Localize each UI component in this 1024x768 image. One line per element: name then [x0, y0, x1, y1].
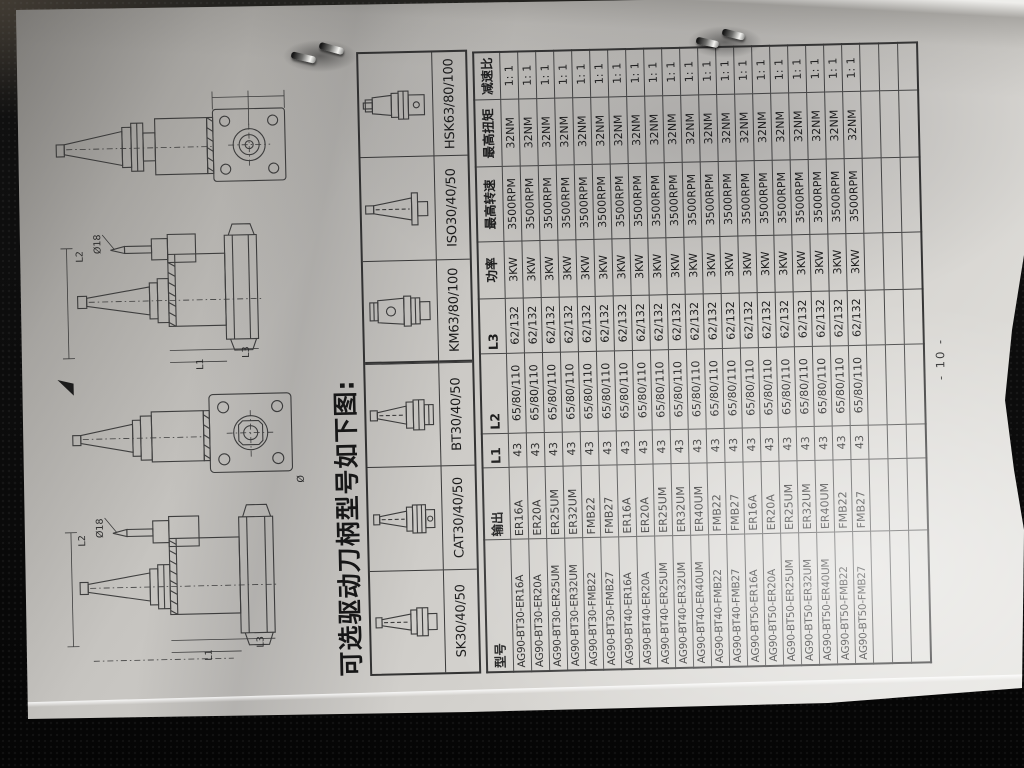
dim-label: Ø — [296, 475, 307, 483]
spec-cell: 32NM — [501, 99, 521, 167]
spec-cell: 32NM — [699, 94, 719, 162]
dim-label: L3 — [241, 346, 252, 358]
spec-cell: 43 — [508, 433, 527, 468]
spec-cell: 65/80/110 — [812, 346, 832, 426]
spec-cell: 62/132 — [649, 294, 668, 350]
spec-cell: 43 — [616, 430, 635, 465]
spec-empty-cell — [899, 90, 920, 158]
spec-cell: FMB22 — [833, 459, 853, 532]
holder-type-label: BT30/40/50 — [439, 362, 474, 466]
spec-cell: 3500RPM — [592, 164, 612, 239]
spec-cell: 3KW — [828, 234, 847, 291]
spec-cell: 65/80/110 — [776, 347, 796, 427]
spec-cell: 3KW — [702, 237, 721, 294]
spec-cell: 1: 1 — [626, 49, 645, 97]
spec-cell: ER16A — [743, 461, 763, 534]
spec-cell: ER20A — [527, 466, 547, 539]
spec-column-header: L1 — [482, 433, 509, 468]
dim-label: L2 — [77, 535, 88, 547]
spec-empty-cell — [861, 91, 882, 159]
spec-cell: 62/132 — [577, 296, 596, 352]
spec-cell: 3KW — [738, 236, 757, 293]
spec-cell: 62/132 — [829, 290, 848, 346]
sk-taper-shank-icon — [372, 599, 443, 645]
technical-drawings-row: L2 Ø18 L1 L3 — [46, 43, 322, 681]
km-shank-icon — [365, 288, 436, 334]
spec-cell: ER25UM — [653, 464, 673, 537]
spec-cell: 1: 1 — [788, 45, 807, 93]
spec-empty-cell — [866, 345, 887, 425]
angle-head-drawing-twin-er: L2 Ø18 L1 L3 — [54, 209, 306, 373]
spec-cell: 3500RPM — [808, 160, 828, 235]
spec-cell: 32NM — [519, 99, 539, 167]
spec-cell: 43 — [706, 428, 725, 463]
spec-empty-cell — [909, 530, 931, 662]
spec-cell: 3KW — [558, 240, 577, 297]
spec-cell: 3500RPM — [772, 160, 792, 235]
spec-cell: 32NM — [717, 94, 737, 162]
paper-sheet: L2 Ø18 L1 L3 — [0, 0, 1024, 768]
spec-cell: 65/80/110 — [848, 345, 868, 425]
spec-table: 型号输出L1L2L3功率最高转速最高扭矩减速比AG90-BT30-ER16AER… — [472, 41, 932, 673]
spec-cell: 43 — [580, 431, 599, 466]
spec-cell: 62/132 — [721, 293, 740, 349]
spec-cell: ER25UM — [779, 461, 799, 534]
spec-cell: 32NM — [537, 98, 557, 166]
spec-cell: 62/132 — [703, 293, 722, 349]
spec-empty-cell — [865, 289, 885, 345]
spec-cell: 3500RPM — [628, 164, 648, 239]
spec-cell: 43 — [688, 428, 707, 463]
spec-cell: 3500RPM — [718, 162, 738, 237]
spec-cell: 43 — [652, 429, 671, 464]
spec-cell: 62/132 — [757, 292, 776, 348]
spec-cell: 3500RPM — [664, 163, 684, 238]
page-content: L2 Ø18 L1 L3 — [38, 15, 963, 695]
spec-empty-cell — [868, 424, 888, 459]
spec-cell: 65/80/110 — [668, 349, 688, 429]
spec-cell: ER16A — [617, 464, 637, 537]
spec-cell: 3KW — [846, 233, 865, 290]
spec-cell: 43 — [562, 431, 581, 466]
spec-empty-cell — [880, 90, 901, 158]
holder-icon-cell — [370, 569, 446, 674]
spec-cell: 1: 1 — [518, 51, 537, 99]
angle-head-drawing-flange-face: Ø — [58, 377, 308, 490]
holder-type-label: SK30/40/50 — [444, 568, 479, 672]
spec-cell: 3KW — [648, 238, 667, 295]
spec-cell: 43 — [742, 427, 761, 462]
spec-cell: 43 — [850, 425, 869, 460]
spec-cell: 3500RPM — [610, 164, 630, 239]
spec-empty-cell — [887, 424, 907, 459]
spec-column-header: L3 — [479, 298, 507, 354]
spec-cell: FMB27 — [851, 459, 871, 532]
bt-taper-shank-icon — [367, 393, 438, 439]
spec-cell: ER20A — [761, 461, 781, 534]
spec-cell: 65/80/110 — [704, 348, 724, 428]
spec-cell: 43 — [724, 428, 743, 463]
spec-cell: 1: 1 — [806, 45, 825, 93]
spec-cell: 65/80/110 — [686, 349, 706, 429]
spec-cell: 32NM — [771, 93, 791, 161]
spec-cell: 43 — [544, 432, 563, 467]
holder-icon-cell — [360, 156, 436, 261]
page-number: - 10 - — [932, 311, 948, 407]
spec-cell: 1: 1 — [662, 48, 681, 96]
spec-column-header: 输出 — [483, 467, 511, 540]
holder-icon-cell — [358, 52, 434, 157]
spec-cell: 62/132 — [793, 291, 812, 347]
spec-cell: FMB27 — [599, 465, 619, 538]
spec-cell: 62/132 — [847, 290, 866, 346]
spec-cell: ER32UM — [797, 460, 817, 533]
cat-taper-shank-icon — [370, 496, 441, 542]
spec-cell: 43 — [796, 426, 815, 461]
spec-column-header: 最高扭矩 — [474, 99, 502, 167]
spec-cell: ER20A — [635, 464, 655, 537]
dim-label: L2 — [75, 251, 86, 263]
spec-cell: 1: 1 — [500, 52, 519, 100]
spec-empty-cell — [906, 423, 926, 458]
spec-empty-cell — [879, 43, 899, 91]
photographed-datasheet: L2 Ø18 L1 L3 — [0, 0, 1024, 768]
spec-cell: ER16A — [509, 467, 529, 540]
dim-label: L1 — [204, 649, 215, 661]
spec-cell: 43 — [598, 430, 617, 465]
spec-cell: 3500RPM — [502, 166, 522, 241]
spec-cell: 1: 1 — [608, 49, 627, 97]
spec-cell: 3500RPM — [736, 161, 756, 236]
spec-cell: 62/132 — [775, 291, 794, 347]
spec-empty-cell — [864, 233, 884, 290]
spec-cell: 3500RPM — [700, 162, 720, 237]
spec-cell: 65/80/110 — [632, 350, 652, 430]
spec-cell: 1: 1 — [644, 48, 663, 96]
staple-left — [291, 45, 351, 69]
spec-cell: 43 — [832, 425, 851, 460]
spec-cell: 3KW — [612, 239, 631, 296]
spec-cell: 65/80/110 — [830, 346, 850, 426]
spec-cell: 65/80/110 — [524, 352, 544, 432]
spec-empty-cell — [888, 458, 909, 531]
spec-cell: 1: 1 — [770, 45, 789, 93]
spec-empty-cell — [869, 459, 890, 532]
spec-cell: 32NM — [735, 94, 755, 162]
staple-right — [696, 31, 756, 55]
spec-empty-cell — [903, 288, 924, 344]
section-arrow-mark — [55, 378, 75, 398]
spec-cell: 3KW — [666, 237, 685, 294]
holder-icon-cell — [368, 466, 444, 571]
spec-cell: 3500RPM — [826, 159, 846, 234]
spec-cell: 1: 1 — [536, 51, 555, 99]
spec-cell: 65/80/110 — [794, 346, 814, 426]
spec-cell: ER32UM — [563, 466, 583, 539]
holder-type-label: CAT30/40/50 — [441, 465, 476, 569]
iso-taper-shank-icon — [363, 186, 434, 232]
spec-cell: 62/132 — [523, 297, 542, 353]
spec-cell: 1: 1 — [554, 50, 573, 98]
spec-cell: 32NM — [753, 93, 773, 161]
spec-cell: ER40UM — [689, 463, 709, 536]
spec-cell: 32NM — [825, 92, 845, 160]
spec-cell: 32NM — [645, 96, 665, 164]
spec-cell: 3KW — [504, 241, 523, 298]
dim-label: L3 — [255, 636, 266, 648]
spec-cell: 3KW — [540, 240, 559, 297]
spec-cell: 65/80/110 — [740, 348, 760, 428]
spec-cell: 3500RPM — [538, 166, 558, 241]
spec-cell: 3500RPM — [844, 159, 864, 234]
dim-label: L1 — [195, 358, 206, 370]
spec-column-header: 功率 — [477, 241, 505, 298]
spec-column-header: 减速比 — [473, 52, 501, 100]
spec-column-header: 最高转速 — [476, 167, 504, 242]
holder-icon-cell — [365, 362, 441, 467]
spec-empty-cell — [862, 158, 883, 233]
spec-cell: 65/80/110 — [650, 350, 670, 430]
spec-cell: 65/80/110 — [542, 352, 562, 432]
spec-cell: 65/80/110 — [722, 348, 742, 428]
spec-cell: 62/132 — [505, 297, 524, 353]
spec-cell: ER32UM — [671, 463, 691, 536]
spec-cell: 3500RPM — [556, 165, 576, 240]
spec-cell: 32NM — [591, 97, 611, 165]
holder-type-band: SK30/40/50 CAT30/40/50 BT30/40/50 KM63/8… — [356, 50, 481, 676]
spec-cell: 62/132 — [613, 295, 632, 351]
spec-cell: ER40UM — [815, 460, 835, 533]
spec-cell: 3KW — [720, 236, 739, 293]
spec-empty-cell — [898, 42, 919, 90]
spec-cell: 3KW — [810, 234, 829, 291]
spec-cell: 43 — [670, 429, 689, 464]
spec-cell: 3KW — [630, 238, 649, 295]
spec-cell: 32NM — [843, 91, 863, 159]
section-heading: 可选驱动刀柄型号如下图: — [326, 379, 369, 677]
spec-empty-cell — [883, 232, 903, 289]
spec-cell: 3500RPM — [682, 162, 702, 237]
spec-cell: 43 — [814, 426, 833, 461]
spec-cell: 1: 1 — [842, 44, 861, 92]
spec-column-header: L2 — [480, 353, 508, 433]
spec-cell: 62/132 — [559, 296, 578, 352]
spec-cell: 1: 1 — [572, 50, 591, 98]
spec-cell: 3KW — [774, 235, 793, 292]
spec-cell: 32NM — [789, 92, 809, 160]
holder-type-label: KM63/80/100 — [437, 258, 472, 362]
spec-cell: 3KW — [684, 237, 703, 294]
spec-cell: 43 — [526, 432, 545, 467]
spec-empty-cell — [885, 344, 906, 424]
spec-cell: 3KW — [576, 239, 595, 296]
spec-cell: 3500RPM — [574, 165, 594, 240]
spec-cell: FMB27 — [725, 462, 745, 535]
spec-cell: 62/132 — [811, 291, 830, 347]
spec-cell: 62/132 — [667, 294, 686, 350]
spec-cell: 62/132 — [739, 292, 758, 348]
dim-label: Ø18 — [92, 234, 103, 254]
angle-head-drawing-square-flange — [51, 83, 302, 207]
spec-cell: 62/132 — [685, 293, 704, 349]
spec-empty-cell — [902, 232, 923, 289]
holder-icon-cell — [363, 259, 439, 364]
spec-cell: 32NM — [555, 98, 575, 166]
spec-cell: 32NM — [609, 96, 629, 164]
spec-cell: 1: 1 — [590, 49, 609, 97]
spec-cell: 3KW — [522, 241, 541, 298]
spec-cell: 3500RPM — [520, 166, 540, 241]
spec-cell: FMB22 — [581, 465, 601, 538]
holder-type-label: HSK63/80/100 — [432, 52, 467, 156]
spec-cell: 3500RPM — [754, 161, 774, 236]
spec-cell: 32NM — [573, 97, 593, 165]
spec-cell: 32NM — [681, 95, 701, 163]
spec-cell: 62/132 — [541, 297, 560, 353]
dim-label: Ø18 — [95, 518, 106, 538]
spec-cell: 65/80/110 — [758, 347, 778, 427]
spec-cell: 32NM — [627, 96, 647, 164]
spec-cell: 3500RPM — [646, 163, 666, 238]
angle-head-drawing-twin-er-large: L2 Ø18 L1 L3 — [60, 494, 312, 665]
spec-cell: 65/80/110 — [578, 351, 598, 431]
spec-cell: 32NM — [663, 95, 683, 163]
hsk-shank-icon — [360, 82, 431, 128]
spec-cell: 3KW — [792, 235, 811, 292]
spec-cell: 1: 1 — [824, 44, 843, 92]
spec-cell: ER25UM — [545, 466, 565, 539]
spec-empty-cell — [907, 458, 928, 531]
spec-empty-cell — [900, 157, 921, 232]
spec-cell: 62/132 — [631, 295, 650, 351]
spec-empty-cell — [860, 43, 880, 91]
spec-cell: 43 — [760, 427, 779, 462]
spec-cell: 62/132 — [595, 295, 614, 351]
spec-cell: 65/80/110 — [506, 353, 526, 433]
spec-cell: 32NM — [807, 92, 827, 160]
spec-cell: 3KW — [756, 235, 775, 292]
spec-column-header: 型号 — [484, 540, 513, 673]
spec-cell: 65/80/110 — [596, 351, 616, 431]
spec-empty-cell — [881, 158, 902, 233]
spec-cell: 3KW — [594, 239, 613, 296]
spec-cell: FMB22 — [707, 462, 727, 535]
spec-empty-cell — [884, 289, 904, 345]
spec-cell: 65/80/110 — [614, 350, 634, 430]
spec-cell: 43 — [634, 430, 653, 465]
holder-type-label: ISO30/40/50 — [434, 155, 469, 259]
spec-cell: 65/80/110 — [560, 352, 580, 432]
spec-empty-cell — [904, 344, 925, 424]
spec-cell: 43 — [778, 426, 797, 461]
spec-cell: 3500RPM — [790, 160, 810, 235]
